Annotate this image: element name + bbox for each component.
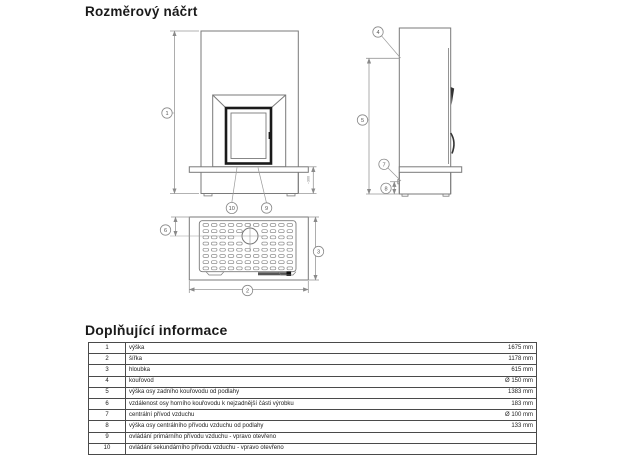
row-label: výška [126, 343, 453, 354]
info-title: Doplňující informace [85, 322, 227, 338]
side-shelf [399, 167, 461, 173]
row-value: 1383 mm [452, 387, 537, 398]
row-number: 4 [89, 376, 126, 387]
callout-1: 1 [162, 108, 172, 118]
row-label: hloubka [126, 365, 453, 376]
upper-lever-icon [451, 87, 455, 105]
row-number: 1 [89, 343, 126, 354]
svg-text:6: 6 [164, 228, 167, 234]
callout-3: 3 [313, 246, 323, 256]
table-row: 3 hloubka 615 mm [89, 365, 537, 376]
table-row: 4 kouřovod Ø 150 mm [89, 376, 537, 387]
row-value: 1178 mm [452, 354, 537, 365]
row-value: 615 mm [452, 365, 537, 376]
front-shelf [189, 167, 308, 173]
side-foot-right [443, 194, 449, 196]
table-row: 6 vzdálenost osy horního kouřovodu k nej… [89, 398, 537, 409]
side-foot-left [402, 194, 408, 196]
svg-text:2: 2 [246, 289, 249, 295]
row-label: ovládání sekundárního přívodu vzduchu - … [126, 443, 453, 454]
row-number: 9 [89, 432, 126, 443]
table-row: 9 ovládání primárního přívodu vzduchu - … [89, 432, 537, 443]
row-value: 133 mm [452, 421, 537, 432]
door-handle-icon [269, 132, 271, 139]
table-row: 1 výška 1675 mm [89, 343, 537, 354]
front-foot-right [287, 194, 295, 196]
row-number: 6 [89, 398, 126, 409]
row-value [452, 443, 537, 454]
dimension-flue-height [366, 58, 399, 194]
row-number: 5 [89, 387, 126, 398]
row-label: ovládání primárního přívodu vzduchu - vp… [126, 432, 453, 443]
row-number: 8 [89, 421, 126, 432]
row-label: šířka [126, 354, 453, 365]
svg-text:7: 7 [382, 162, 385, 168]
door-glass [231, 113, 266, 159]
callout-10: 10 [226, 202, 237, 213]
callout-8: 8 [381, 183, 391, 193]
row-label: kouřovod [126, 376, 453, 387]
svg-text:5: 5 [361, 118, 364, 124]
svg-text:3: 3 [317, 250, 320, 256]
callout-7: 7 [379, 159, 389, 169]
row-label: výška osy zadního kouřovodu od podlahy [126, 387, 453, 398]
table-row: 2 šířka 1178 mm [89, 354, 537, 365]
row-value: Ø 100 mm [452, 410, 537, 421]
top-view [189, 217, 308, 280]
row-label: vzdálenost osy horního kouřovodu k nejza… [126, 398, 453, 409]
row-value: Ø 150 mm [452, 376, 537, 387]
table-row: 5 výška osy zadního kouřovodu od podlahy… [89, 387, 537, 398]
dimensional-drawing: ~300 [0, 0, 624, 315]
callout-9: 9 [261, 203, 271, 213]
document-page: Rozměrový náčrt [0, 0, 624, 460]
table-row: 8 výška osy centrálního přívodu vzduchu … [89, 421, 537, 432]
front-view [189, 31, 308, 196]
svg-text:10: 10 [229, 206, 235, 212]
table-row: 7 centrální přívod vzduchu Ø 100 mm [89, 410, 537, 421]
svg-text:4: 4 [376, 30, 379, 36]
row-number: 10 [89, 443, 126, 454]
callout-6: 6 [160, 225, 170, 235]
door-frame [226, 108, 271, 164]
row-value: 1675 mm [452, 343, 537, 354]
row-number: 7 [89, 410, 126, 421]
svg-text:9: 9 [265, 206, 268, 212]
shelf-height-label: ~300 [307, 176, 311, 184]
row-label: centrální přívod vzduchu [126, 410, 453, 421]
row-label: výška osy centrálního přívodu vzduchu od… [126, 421, 453, 432]
callout-4: 4 [373, 27, 383, 37]
front-foot-left [204, 194, 212, 196]
svg-text:8: 8 [384, 186, 387, 192]
callout-2: 2 [242, 285, 252, 295]
row-value: 183 mm [452, 398, 537, 409]
row-value [452, 432, 537, 443]
svg-text:1: 1 [165, 111, 168, 117]
callout-5: 5 [357, 115, 367, 125]
side-view [398, 28, 462, 196]
row-number: 3 [89, 365, 126, 376]
table-row: 10 ovládání sekundárního přívodu vzduchu… [89, 443, 537, 454]
row-number: 2 [89, 354, 126, 365]
info-table: 1 výška 1675 mm 2 šířka 1178 mm 3 hloubk… [88, 342, 537, 455]
